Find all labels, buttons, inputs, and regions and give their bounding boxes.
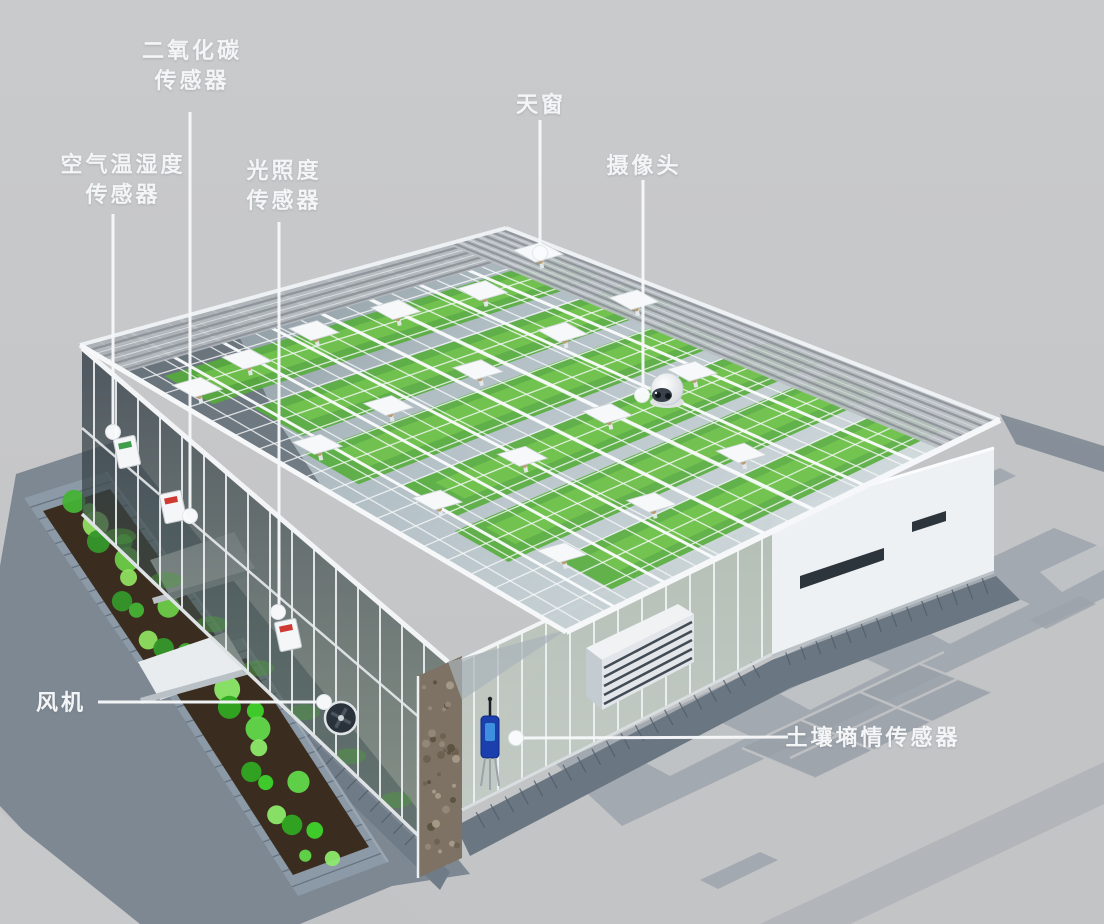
greenhouse-illustration: 二氧化碳 传感器 空气温湿度 传感器 光照度 传感器 天窗 摄像头 风机 土壤墒… — [0, 0, 1104, 924]
label-co2-line1: 二氧化碳 — [142, 36, 242, 66]
leader-soil — [522, 737, 788, 738]
leader-dot-camera — [635, 388, 650, 403]
label-light-line1: 光照度 — [246, 156, 321, 186]
leader-dot-fan — [317, 695, 332, 710]
leader-dot-skylight — [533, 246, 548, 261]
label-camera: 摄像头 — [606, 151, 681, 181]
scene-canvas — [0, 0, 1104, 924]
leader-dot-air — [106, 425, 121, 440]
label-co2-line2: 传感器 — [142, 66, 242, 96]
label-air-temp-humidity-sensor: 空气温湿度 传感器 — [60, 150, 185, 210]
leader-dot-co2 — [183, 509, 198, 524]
leader-dot-soil — [509, 731, 524, 746]
camera-dome-icon — [650, 373, 684, 408]
label-soil-moisture-sensor: 土壤墒情传感器 — [785, 723, 960, 753]
corner-stone-column — [418, 656, 462, 878]
label-air-line1: 空气温湿度 — [60, 150, 185, 180]
label-skylight: 天窗 — [516, 90, 566, 120]
label-light-sensor: 光照度 传感器 — [246, 156, 321, 216]
label-co2-sensor: 二氧化碳 传感器 — [142, 36, 242, 96]
leader-dot-light — [271, 605, 286, 620]
label-air-line2: 传感器 — [60, 180, 185, 210]
label-light-line2: 传感器 — [246, 186, 321, 216]
label-fan: 风机 — [36, 688, 86, 718]
